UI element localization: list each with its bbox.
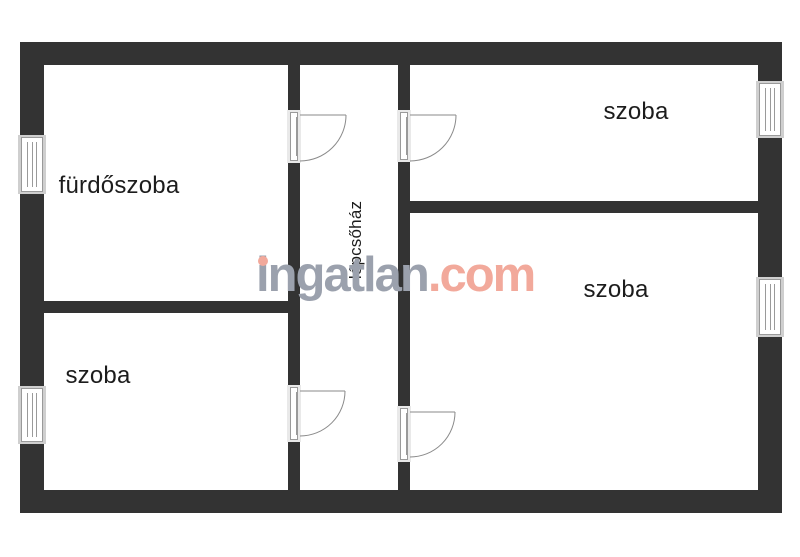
divider-left-rooms bbox=[44, 301, 288, 313]
wall-right-upper bbox=[758, 65, 782, 81]
watermark-brand: ingatlan bbox=[256, 248, 428, 302]
wall-top bbox=[20, 42, 782, 65]
window-room-bottom-right bbox=[756, 277, 784, 337]
door-frame-pane bbox=[406, 117, 408, 155]
watermark-suffix: .com bbox=[428, 248, 534, 302]
wall-left-middle bbox=[20, 194, 44, 386]
door-frame-inner bbox=[400, 408, 408, 460]
window-glazing bbox=[21, 388, 43, 442]
room-label-room-top-right: szoba bbox=[603, 98, 668, 126]
door-swing-room-top-right bbox=[410, 115, 456, 161]
divider-right-rooms bbox=[410, 201, 758, 213]
door-frame-room-top-right bbox=[397, 110, 411, 162]
window-pane bbox=[27, 393, 37, 437]
watermark-i-dot bbox=[258, 256, 268, 266]
window-room-top-right bbox=[756, 81, 784, 138]
wall-bottom bbox=[20, 490, 782, 513]
floorplan-canvas: fürdőszoba szoba szoba szoba lépcsőház i… bbox=[0, 0, 800, 557]
wall-right-lower bbox=[758, 337, 782, 490]
window-glazing bbox=[21, 137, 43, 192]
staircase-wall-right-upper bbox=[398, 65, 410, 110]
wall-left-upper bbox=[20, 65, 44, 135]
door-swing-bathroom bbox=[300, 115, 346, 161]
door-frame-pane bbox=[296, 392, 298, 435]
staircase-wall-right-lower bbox=[398, 462, 410, 490]
room-label-room-bottom-left: szoba bbox=[65, 362, 130, 390]
window-glazing bbox=[759, 279, 781, 335]
door-swing-room-bottom-right bbox=[410, 412, 455, 457]
room-label-room-bottom-right: szoba bbox=[583, 276, 648, 304]
wall-right-middle bbox=[758, 138, 782, 277]
wall-left-lower bbox=[20, 444, 44, 490]
door-frame-room-bottom-left bbox=[287, 385, 301, 442]
door-frame-pane bbox=[296, 117, 298, 156]
door-frame-bathroom bbox=[287, 110, 301, 163]
window-bathroom bbox=[18, 135, 46, 194]
window-pane bbox=[27, 142, 37, 187]
door-frame-inner bbox=[290, 112, 298, 161]
door-swing-room-bottom-left bbox=[300, 391, 345, 436]
watermark: ingatlan.com bbox=[256, 251, 534, 300]
staircase-wall-left-upper bbox=[288, 65, 300, 110]
door-frame-pane bbox=[406, 413, 408, 455]
window-pane bbox=[765, 284, 775, 330]
door-frame-inner bbox=[290, 387, 298, 440]
door-frame-room-bottom-right bbox=[397, 406, 411, 462]
window-room-bottom-left bbox=[18, 386, 46, 444]
door-frame-inner bbox=[400, 112, 408, 160]
staircase-wall-left-lower bbox=[288, 442, 300, 490]
window-pane bbox=[765, 88, 775, 131]
window-glazing bbox=[759, 83, 781, 136]
room-label-bathroom: fürdőszoba bbox=[59, 172, 180, 200]
